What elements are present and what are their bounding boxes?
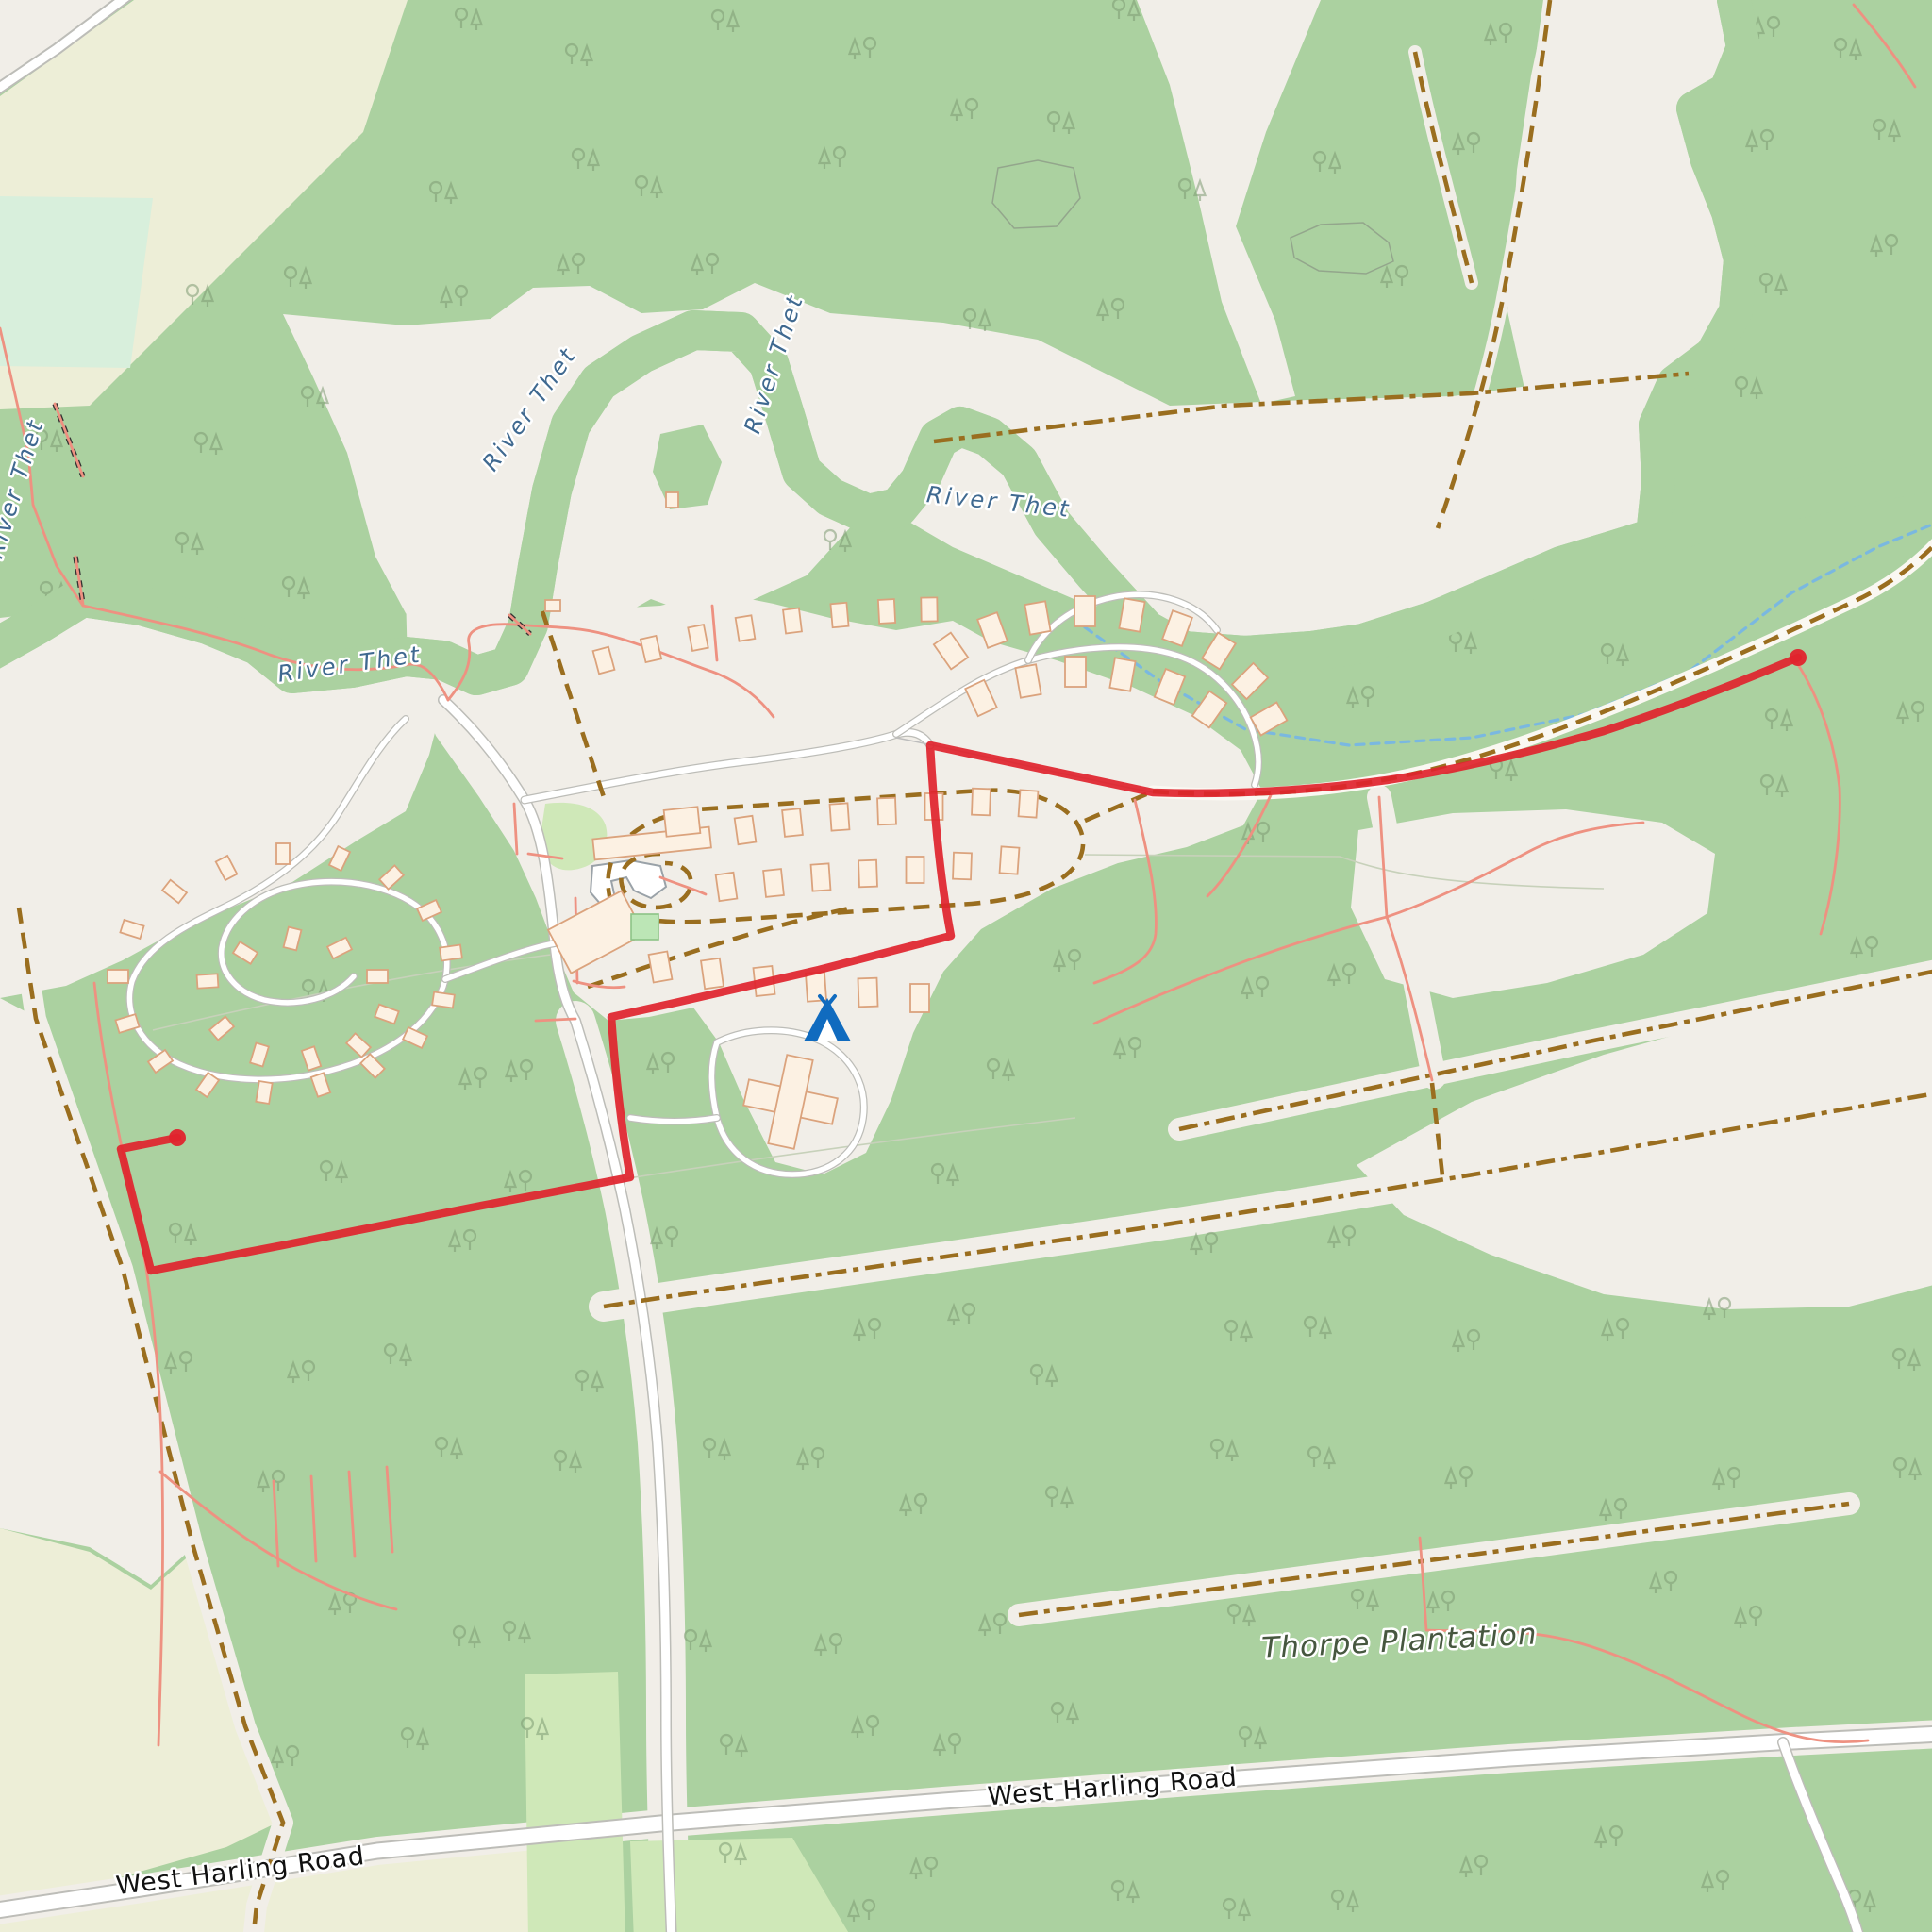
lodge-building [1109,658,1135,691]
lodge-building [1015,664,1041,697]
map-canvas[interactable]: River Thet River Thet River Thet River T… [0,0,1932,1932]
lodge-building [1065,657,1086,687]
lodge-building [432,991,455,1008]
lodge-building [701,958,724,989]
lodge-building [858,860,877,888]
route-endpoint-marker [169,1129,186,1146]
lodge-building [953,853,972,880]
lodge-building [1074,596,1095,626]
lodge-building [858,978,877,1008]
lodge-building [877,798,896,825]
lodge-building [921,597,937,621]
lodge-building [811,863,831,891]
lodge-building [878,599,895,624]
lodge-building [688,625,708,651]
lodge-building [830,803,850,830]
lodge-building [782,808,803,837]
lodge-building [276,843,290,864]
lodge-building [907,857,924,883]
lodge-building [910,984,929,1012]
lodge-building [649,951,673,982]
lodge-building [1019,790,1039,817]
lodge-building [256,1081,272,1104]
lodge-building [806,972,826,1001]
lodge-building [367,970,388,983]
lodge-building [1024,601,1050,634]
lodge-building [783,608,802,634]
lodge-building [830,603,848,627]
route-endpoint-marker [1790,649,1807,666]
lodge-building [763,869,784,897]
lodge-building [735,816,757,844]
lodge-building [716,873,738,901]
lodge-building [1000,846,1020,874]
lodge-building [1119,598,1144,631]
lodge-building [197,974,219,988]
lodge-building [440,945,462,961]
lodge-building [108,970,128,983]
lodge-building [736,615,756,641]
lodge-building [972,789,991,816]
